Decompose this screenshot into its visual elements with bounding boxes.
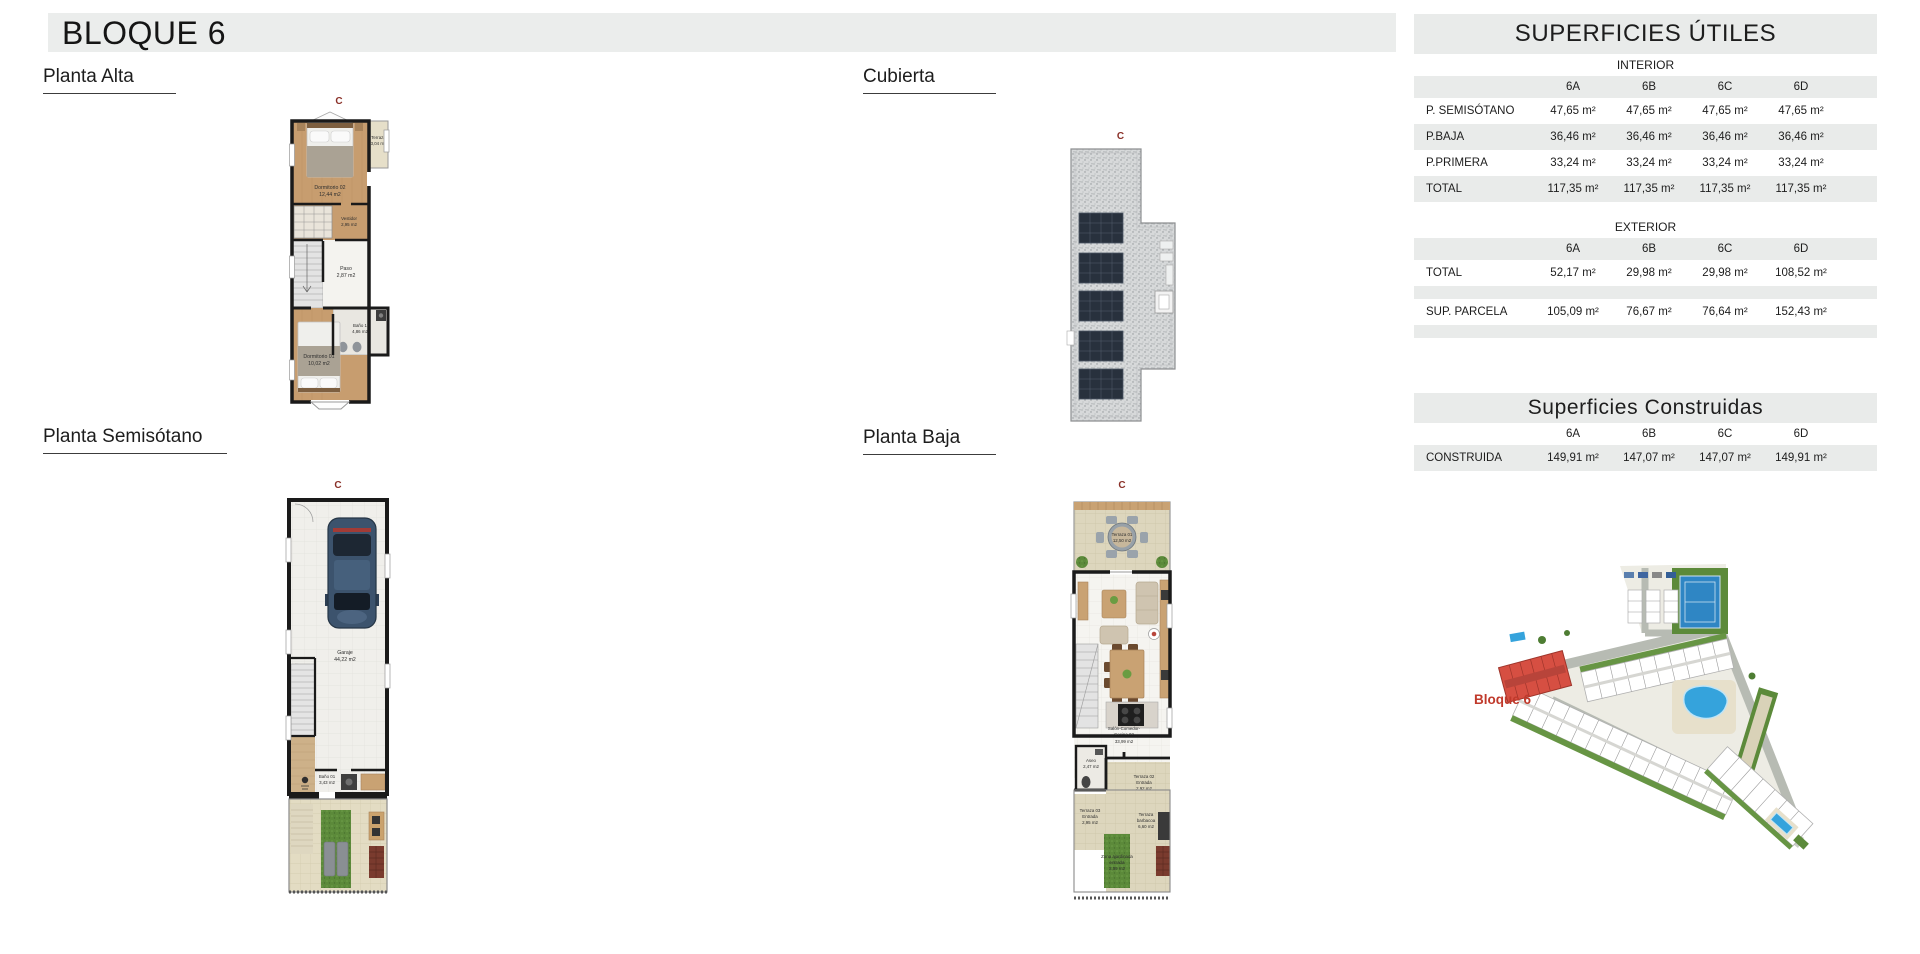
exterior-header-row: 6A 6B 6C 6D: [1414, 238, 1877, 260]
column-header: 6A: [1535, 81, 1611, 93]
cell: 76,64 m²: [1687, 306, 1763, 318]
cell: 36,46 m²: [1611, 131, 1687, 143]
room-area: 4,86 m2: [352, 329, 368, 334]
cell: 147,07 m²: [1611, 452, 1687, 464]
room-area: 33,99 m2: [1115, 739, 1134, 744]
spacer: [1414, 286, 1877, 299]
column-header: 6C: [1687, 81, 1763, 93]
table-row: CONSTRUIDA 149,91 m² 147,07 m² 147,07 m²…: [1414, 445, 1877, 471]
room-label: Entrada: [1136, 780, 1152, 785]
room-label: Dormitorio 02: [314, 185, 345, 191]
table-row: P.BAJA 36,46 m² 36,46 m² 36,46 m² 36,46 …: [1414, 124, 1877, 150]
cell: 105,09 m²: [1535, 306, 1611, 318]
column-header: 6B: [1611, 243, 1687, 255]
row-label: P. SEMISÓTANO: [1414, 105, 1535, 117]
table-row: TOTAL 117,35 m² 117,35 m² 117,35 m² 117,…: [1414, 176, 1877, 202]
cell: 152,43 m²: [1763, 306, 1839, 318]
row-label: SUP. PARCELA: [1414, 306, 1535, 318]
planta-alta-floorplan: Dormitorio 02 12,44 m2 Terraza 3,04 m2 V…: [283, 110, 395, 410]
cell: 29,98 m²: [1611, 267, 1687, 279]
room-label: Zona ajardinada: [1101, 854, 1133, 859]
spacer: [1414, 202, 1877, 216]
cell: 117,35 m²: [1535, 183, 1611, 195]
cell: 33,24 m²: [1687, 157, 1763, 169]
row-label: P.BAJA: [1414, 131, 1535, 143]
cell: 33,24 m²: [1763, 157, 1839, 169]
column-header: 6A: [1535, 243, 1611, 255]
room-area: 12,44 m2: [319, 192, 341, 198]
row-label: TOTAL: [1414, 183, 1535, 195]
page-title-band: BLOQUE 6: [48, 13, 1396, 52]
cell: 47,65 m²: [1763, 105, 1839, 117]
room-label: entrada: [1110, 860, 1125, 865]
room-label: Dormitorio 01: [303, 354, 334, 360]
room-label: Terraza 01: [1112, 532, 1133, 537]
room-area: 2,87 m2: [337, 273, 356, 279]
siteplan-map: Bloque 6: [1452, 538, 1876, 872]
room-label: barbacoa: [1137, 818, 1156, 823]
page-title: BLOQUE 6: [62, 13, 1396, 53]
room-area: 10,02 m2: [308, 361, 330, 367]
superficies-utiles-title: SUPERFICIES ÚTILES: [1414, 14, 1877, 54]
exterior-section-label: EXTERIOR: [1414, 216, 1877, 238]
row-label: TOTAL: [1414, 267, 1535, 279]
row-label: P.PRIMERA: [1414, 157, 1535, 169]
spacer: [1414, 325, 1877, 338]
planta-semisotano-plan: C: [281, 480, 395, 903]
cell: 29,98 m²: [1687, 267, 1763, 279]
room-label: Garaje: [337, 650, 353, 656]
brochure-page: BLOQUE 6 Planta Alta Cubierta Planta Sem…: [0, 0, 1920, 954]
room-label: Salón-Comedor-: [1108, 726, 1141, 731]
cubierta-plan: C: [1063, 131, 1178, 430]
planta-baja-floorplan: Terraza 01 12,50 m2: [1066, 494, 1178, 906]
section-label-planta-semisotano: Planta Semisótano: [43, 426, 227, 454]
table-row: SUP. PARCELA 105,09 m² 76,67 m² 76,64 m²…: [1414, 299, 1877, 325]
cubierta-roofplan: [1063, 145, 1178, 425]
superficies-utiles-table: SUPERFICIES ÚTILES INTERIOR 6A 6B 6C 6D …: [1414, 14, 1877, 338]
planta-baja-c-marker: C: [1066, 480, 1178, 494]
cell: 76,67 m²: [1611, 306, 1687, 318]
room-area: 2,95 m2: [341, 222, 357, 227]
column-header: 6D: [1763, 81, 1839, 93]
construidas-header-row: 6A 6B 6C 6D: [1414, 423, 1877, 445]
room-label: Baño 1: [353, 323, 367, 328]
room-label: Aseo: [1086, 758, 1097, 763]
section-label-cubierta: Cubierta: [863, 66, 996, 94]
cell: 117,35 m²: [1763, 183, 1839, 195]
room-area: 2,59 m2: [1109, 866, 1125, 871]
interior-section-label: INTERIOR: [1414, 54, 1877, 76]
section-label-planta-alta: Planta Alta: [43, 66, 176, 94]
room-label: Terraza 02: [1134, 774, 1155, 779]
cell: 33,24 m²: [1611, 157, 1687, 169]
cell: 36,46 m²: [1687, 131, 1763, 143]
table-row: TOTAL 52,17 m² 29,98 m² 29,98 m² 108,52 …: [1414, 260, 1877, 286]
row-label: CONSTRUIDA: [1414, 452, 1535, 464]
cell: 52,17 m²: [1535, 267, 1611, 279]
column-header: 6D: [1763, 243, 1839, 255]
planta-semisotano-floorplan: Garaje 44,22 m2 Baño 01 3,43 m2: [281, 494, 395, 898]
planta-alta-c-marker: C: [283, 96, 395, 110]
cell: 33,24 m²: [1535, 157, 1611, 169]
room-label: Vestidor: [341, 216, 357, 221]
room-area: 2,95 m2: [1082, 820, 1098, 825]
cell: 117,35 m²: [1687, 183, 1763, 195]
pool: [1672, 680, 1736, 734]
room-label: Paso: [340, 266, 352, 272]
solar-panels: [1079, 213, 1123, 399]
room-area: 12,50 m2: [1113, 538, 1132, 543]
cell: 47,65 m²: [1611, 105, 1687, 117]
bloque6-label: Bloque 6: [1474, 692, 1531, 707]
column-header: 6C: [1687, 428, 1763, 440]
superficies-construidas-table: Superficies Construidas 6A 6B 6C 6D CONS…: [1414, 393, 1877, 471]
cell: 108,52 m²: [1763, 267, 1839, 279]
tennis-court: [1672, 568, 1728, 634]
cell: 147,07 m²: [1687, 452, 1763, 464]
room-area: 44,22 m2: [334, 657, 356, 663]
cell: 149,91 m²: [1763, 452, 1839, 464]
room-area: 3,43 m2: [319, 780, 335, 785]
column-header: 6B: [1611, 428, 1687, 440]
room-area: 2,47 m2: [1083, 764, 1099, 769]
cell: 47,65 m²: [1535, 105, 1611, 117]
planta-baja-plan: C: [1066, 480, 1178, 911]
dining-set: [1104, 644, 1144, 704]
cell: 47,65 m²: [1687, 105, 1763, 117]
planta-semisotano-c-marker: C: [281, 480, 395, 494]
room-label: Baño 01: [319, 774, 336, 779]
car: [325, 518, 379, 628]
table-row: P.PRIMERA 33,24 m² 33,24 m² 33,24 m² 33,…: [1414, 150, 1877, 176]
column-header: 6D: [1763, 428, 1839, 440]
room-label: Terraza: [1139, 812, 1154, 817]
cell: 149,91 m²: [1535, 452, 1611, 464]
column-header: 6C: [1687, 243, 1763, 255]
cell: 36,46 m²: [1763, 131, 1839, 143]
superficies-construidas-title: Superficies Construidas: [1414, 393, 1877, 423]
bbq: [369, 846, 384, 878]
column-header: 6A: [1535, 428, 1611, 440]
cell: 117,35 m²: [1611, 183, 1687, 195]
bbq: [1156, 846, 1170, 876]
room-area: 6,60 m2: [1138, 824, 1154, 829]
room-label: Terraza 03: [1080, 808, 1101, 813]
interior-header-row: 6A 6B 6C 6D: [1414, 76, 1877, 98]
planta-alta-plan: C Dormitorio 02 12,44 m2 Terraza 3,04 m2: [283, 96, 395, 415]
section-label-planta-baja: Planta Baja: [863, 427, 996, 455]
room-label: Entrada: [1082, 814, 1098, 819]
cell: 36,46 m²: [1535, 131, 1611, 143]
table-row: P. SEMISÓTANO 47,65 m² 47,65 m² 47,65 m²…: [1414, 98, 1877, 124]
cubierta-c-marker: C: [1063, 131, 1178, 145]
column-header: 6B: [1611, 81, 1687, 93]
